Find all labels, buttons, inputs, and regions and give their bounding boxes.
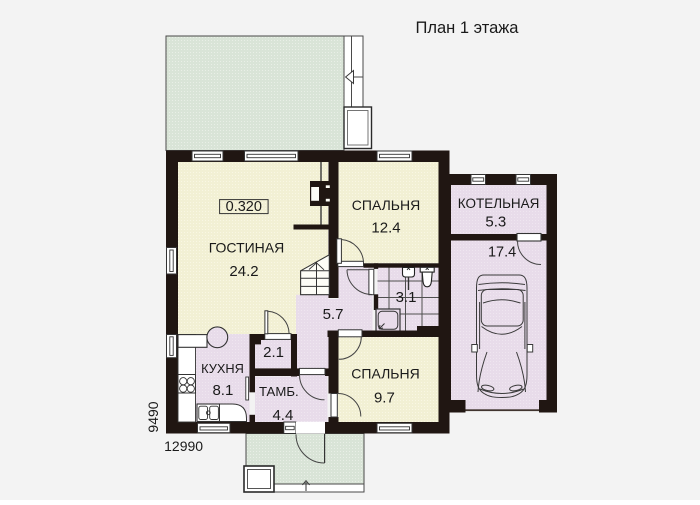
svg-text:5.3: 5.3 — [485, 213, 506, 230]
svg-text:9.7: 9.7 — [374, 390, 395, 407]
svg-text:5.7: 5.7 — [323, 306, 344, 323]
svg-text:СПАЛЬНЯ: СПАЛЬНЯ — [352, 197, 420, 213]
svg-text:4.4: 4.4 — [272, 407, 293, 424]
svg-text:9490: 9490 — [145, 401, 161, 432]
svg-text:2.1: 2.1 — [263, 344, 284, 361]
svg-text:12.4: 12.4 — [371, 220, 400, 237]
svg-text:3.1: 3.1 — [396, 289, 417, 306]
svg-text:0.320: 0.320 — [226, 199, 262, 215]
svg-text:ТАМБ.: ТАМБ. — [259, 384, 299, 399]
svg-text:8.1: 8.1 — [212, 382, 233, 399]
svg-text:СПАЛЬНЯ: СПАЛЬНЯ — [351, 366, 419, 382]
svg-text:12990: 12990 — [164, 438, 203, 454]
svg-text:План 1 этажа: План 1 этажа — [416, 19, 520, 37]
svg-text:24.2: 24.2 — [229, 263, 258, 280]
svg-text:ГОСТИНАЯ: ГОСТИНАЯ — [209, 240, 285, 256]
svg-text:17.4: 17.4 — [488, 245, 516, 261]
svg-text:КУХНЯ: КУХНЯ — [201, 361, 244, 376]
svg-text:КОТЕЛЬНАЯ: КОТЕЛЬНАЯ — [458, 196, 540, 211]
